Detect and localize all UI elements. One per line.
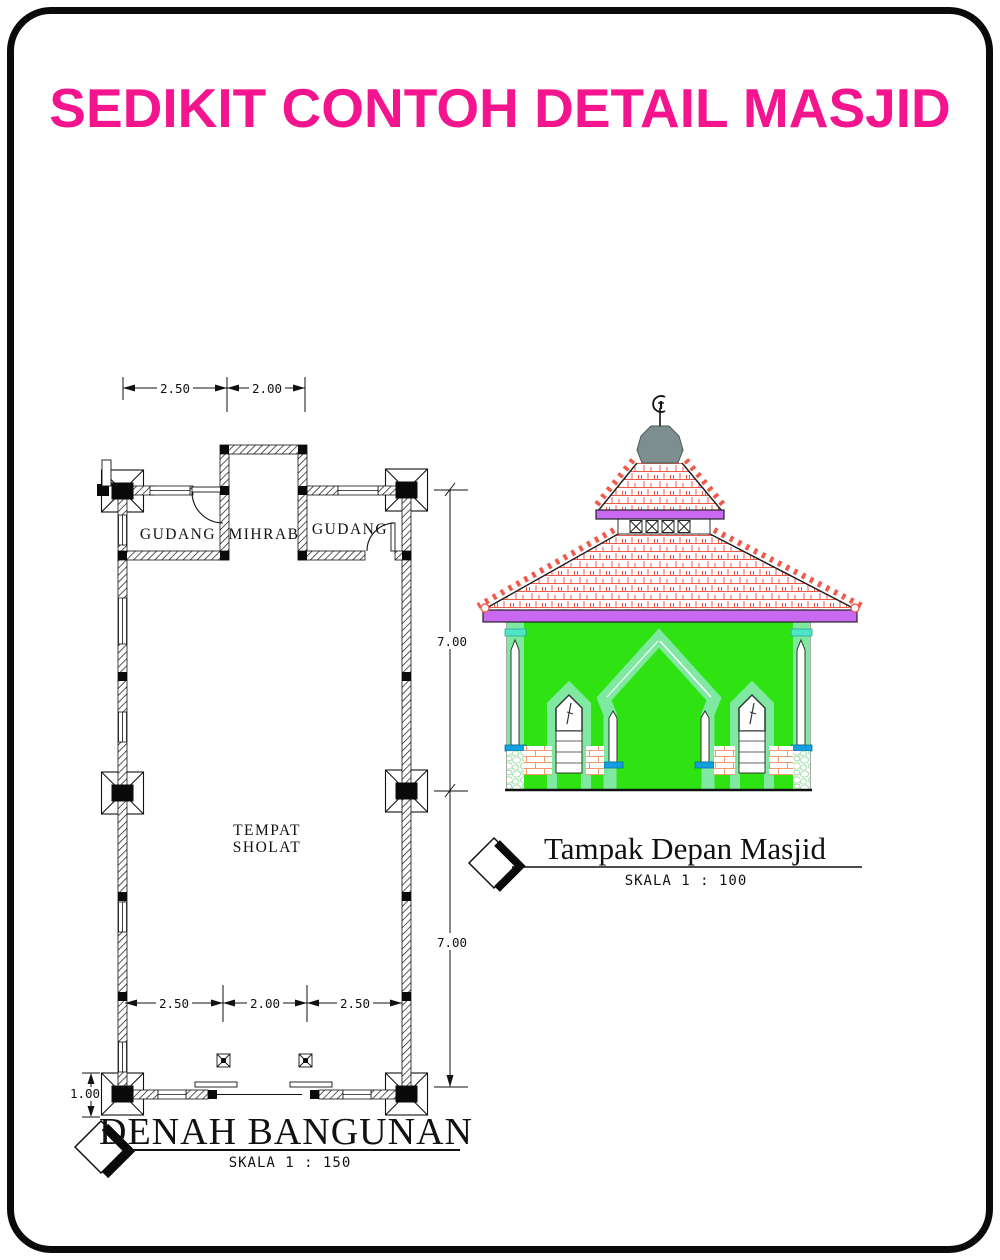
plan-title: DENAH BANGUNAN [99, 1111, 473, 1153]
drawing-canvas: 2.50 2.00 7.00 7.00 [0, 0, 1000, 1260]
porch-columns [217, 1054, 312, 1067]
lower-roof [478, 530, 862, 622]
stone-base [507, 751, 524, 790]
window-segment [338, 486, 378, 495]
dim-porch: 1.00 [70, 1073, 100, 1117]
clerestory [618, 519, 710, 534]
pilaster [511, 640, 519, 745]
room-label-mihrab: MIHRAB [228, 526, 299, 543]
pilaster [797, 640, 805, 745]
floor-plan: 2.50 2.00 7.00 7.00 [70, 377, 473, 1175]
room-label-gudang-left: GUDANG [140, 526, 216, 543]
plan-title-block: DENAH BANGUNAN SKALA 1 : 150 [75, 1111, 473, 1175]
elevation-scale: SKALA 1 : 100 [625, 873, 748, 889]
elevation-title: Tampak Depan Masjid [544, 831, 826, 866]
dim-label: 7.00 [437, 935, 467, 950]
dim-label: 2.50 [160, 381, 190, 396]
elevation: Tampak Depan Masjid SKALA 1 : 100 [469, 396, 862, 889]
room-label-prayer-2: SHOLAT [233, 839, 301, 856]
room-label-gudang-right: GUDANG [312, 521, 388, 538]
window-segment [150, 486, 190, 495]
dim-label: 1.00 [70, 1086, 100, 1101]
dim-top: 2.50 2.00 [123, 377, 305, 412]
dim-bottom: 2.50 2.00 2.50 [125, 985, 402, 1022]
dim-right: 7.00 7.00 [434, 483, 468, 1087]
plan-scale: SKALA 1 : 150 [229, 1155, 352, 1171]
dim-label: 2.50 [159, 996, 189, 1011]
room-label-prayer-1: TEMPAT [233, 822, 301, 839]
porch-column [299, 1054, 312, 1067]
plan-stub-top-left [102, 460, 111, 486]
dim-label: 2.00 [250, 996, 280, 1011]
upper-roof [594, 460, 726, 519]
elevation-title-block: Tampak Depan Masjid SKALA 1 : 100 [469, 831, 862, 889]
dome-finial [637, 396, 683, 463]
dim-label: 7.00 [437, 634, 467, 649]
dim-label: 2.50 [340, 996, 370, 1011]
door-gudang-left [192, 487, 223, 523]
section-diamond-icon [469, 838, 520, 889]
dim-label: 2.00 [252, 381, 282, 396]
plan-columns [102, 469, 428, 1115]
crescent-icon [653, 396, 665, 412]
stone-base [793, 751, 810, 790]
porch-column [217, 1054, 230, 1067]
